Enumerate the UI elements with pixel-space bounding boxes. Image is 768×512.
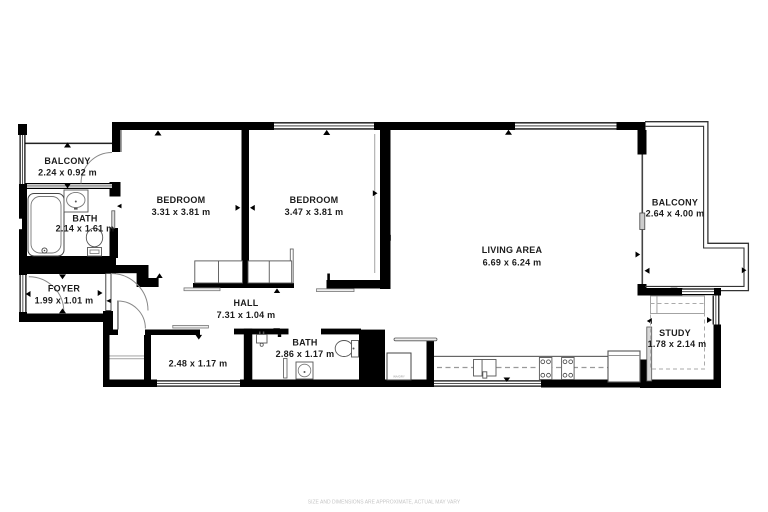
- svg-text:BEDROOM: BEDROOM: [157, 195, 206, 205]
- svg-text:BATH: BATH: [292, 338, 317, 348]
- svg-text:BALCONY: BALCONY: [44, 156, 90, 166]
- svg-text:6.69 x 6.24 m: 6.69 x 6.24 m: [483, 258, 542, 268]
- svg-text:1.78 x 2.14 m: 1.78 x 2.14 m: [648, 339, 707, 349]
- svg-text:WA/DRY: WA/DRY: [393, 375, 405, 379]
- svg-text:2.64 x 4.00 m: 2.64 x 4.00 m: [646, 209, 705, 219]
- svg-text:2.48 x 1.17 m: 2.48 x 1.17 m: [169, 359, 228, 369]
- svg-text:1.99 x 1.01 m: 1.99 x 1.01 m: [35, 296, 94, 306]
- svg-text:STUDY: STUDY: [659, 328, 691, 338]
- svg-text:2.86 x 1.17 m: 2.86 x 1.17 m: [276, 349, 335, 359]
- svg-text:BEDROOM: BEDROOM: [290, 195, 339, 205]
- svg-text:3.31 x 3.81 m: 3.31 x 3.81 m: [152, 207, 211, 217]
- svg-text:HALL: HALL: [234, 298, 259, 308]
- svg-text:2.14 x 1.61 m: 2.14 x 1.61 m: [56, 224, 115, 234]
- svg-text:7.31 x 1.04 m: 7.31 x 1.04 m: [217, 310, 276, 320]
- svg-text:FOYER: FOYER: [48, 284, 81, 294]
- svg-text:3.47 x 3.81 m: 3.47 x 3.81 m: [285, 207, 344, 217]
- svg-text:BATH: BATH: [72, 214, 97, 224]
- svg-text:SIZE AND DIMENSIONS ARE APPROX: SIZE AND DIMENSIONS ARE APPROXIMATE, ACT…: [308, 500, 461, 506]
- svg-text:BALCONY: BALCONY: [652, 198, 698, 208]
- svg-text:2.24 x 0.92 m: 2.24 x 0.92 m: [38, 168, 97, 178]
- svg-text:LIVING AREA: LIVING AREA: [482, 245, 543, 255]
